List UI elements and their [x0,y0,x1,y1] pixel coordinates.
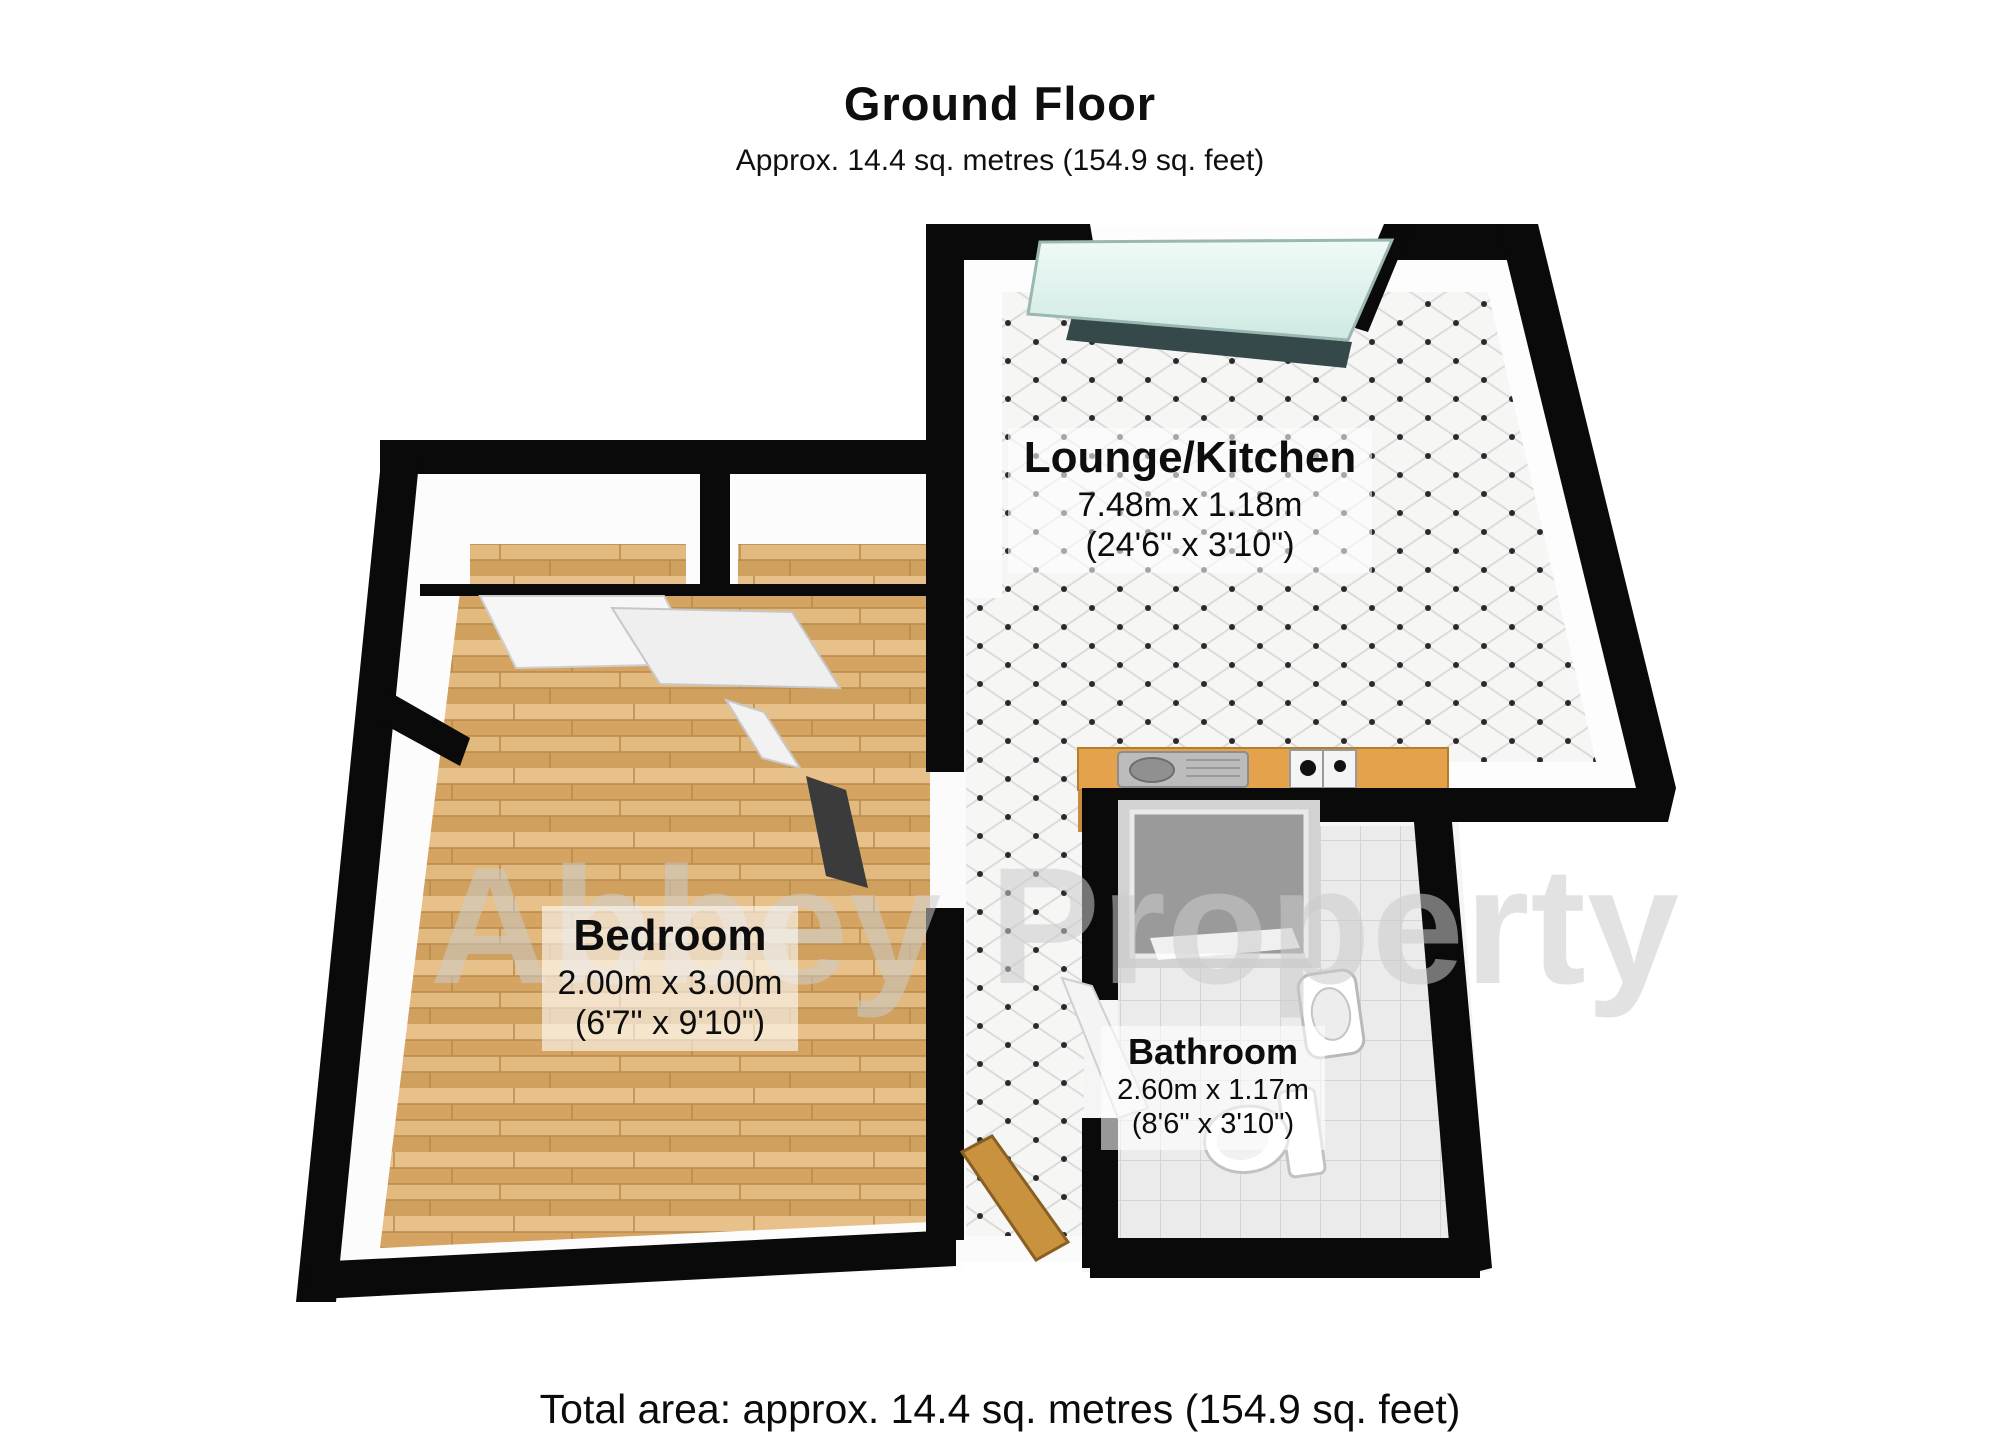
floorplan-drawing [0,0,2000,1455]
lounge-kitchen-name: Lounge/Kitchen [1024,432,1356,485]
gas-burner-right [1334,760,1346,772]
room-label-lounge-kitchen: Lounge/Kitchen 7.48m x 1.18m (24'6" x 3'… [960,428,1420,573]
wall-wardrobe-rail [420,584,932,596]
wall-bedroom-right-lower [926,908,964,1240]
floorplan-canvas: Ground Floor Approx. 14.4 sq. metres (15… [0,0,2000,1455]
bedroom-size-metric: 2.00m x 3.00m [558,963,783,1003]
bathroom-name: Bathroom [1117,1030,1309,1073]
kitchen-sink-bowl [1130,758,1174,782]
room-label-bedroom: Bedroom 2.00m x 3.00m (6'7" x 9'10") [440,906,900,1051]
bedroom-size-imperial: (6'7" x 9'10") [558,1003,783,1043]
gas-burner-left [1300,760,1316,776]
bathroom-size-imperial: (8'6" x 3'10") [1117,1107,1309,1141]
wall-bedroom-right-upper [926,584,964,772]
wall-wardrobe-divider [700,440,730,590]
lounge-kitchen-size-imperial: (24'6" x 3'10") [1024,525,1356,565]
wall-lounge-bottom-right [1392,788,1676,822]
wall-bathroom-bottom [1090,1238,1480,1278]
wardrobe-right-floor [738,544,928,588]
wall-lounge-left [926,224,964,586]
wall-bathroom-left-upper [1082,788,1118,1000]
lounge-kitchen-size-metric: 7.48m x 1.18m [1024,485,1356,525]
total-area-text: Total area: approx. 14.4 sq. metres (154… [0,1386,2000,1433]
bedroom-name: Bedroom [558,910,783,963]
bathroom-size-metric: 2.60m x 1.17m [1117,1073,1309,1107]
room-label-bathroom: Bathroom 2.60m x 1.17m (8'6" x 3'10") [1058,1026,1368,1150]
wall-bedroom-top [380,440,940,474]
wardrobe-left-floor [470,544,686,588]
